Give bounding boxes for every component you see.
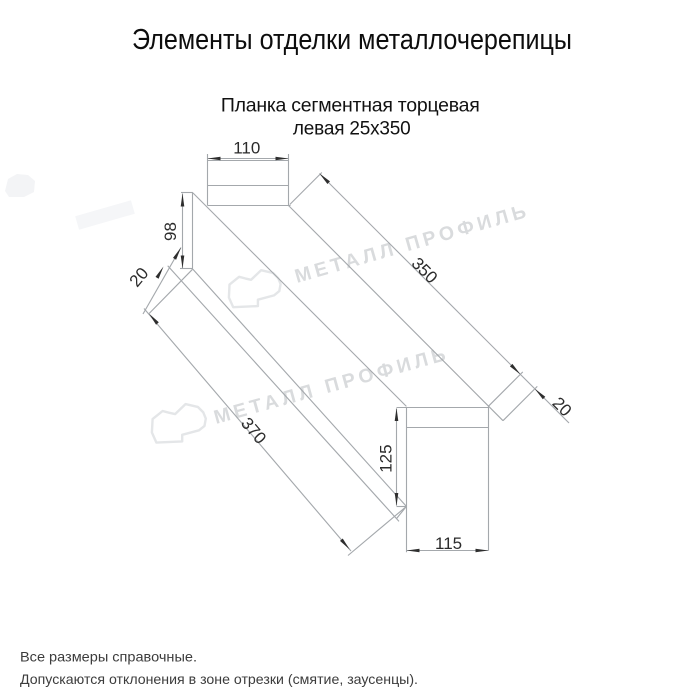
svg-text:левая 25x350: левая 25x350	[293, 119, 411, 140]
svg-text:Элементы отделки металлочерепи: Элементы отделки металлочерепицы	[132, 24, 572, 56]
svg-text:Планка сегментная торцевая: Планка сегментная торцевая	[221, 95, 480, 117]
svg-text:115: 115	[435, 534, 462, 553]
svg-text:Допускаются отклонения в зоне: Допускаются отклонения в зоне отрезки (с…	[20, 671, 418, 687]
svg-text:Все размеры справочные.: Все размеры справочные.	[20, 649, 197, 665]
svg-text:98: 98	[161, 222, 180, 241]
svg-text:125: 125	[376, 444, 395, 472]
svg-text:110: 110	[233, 139, 260, 158]
